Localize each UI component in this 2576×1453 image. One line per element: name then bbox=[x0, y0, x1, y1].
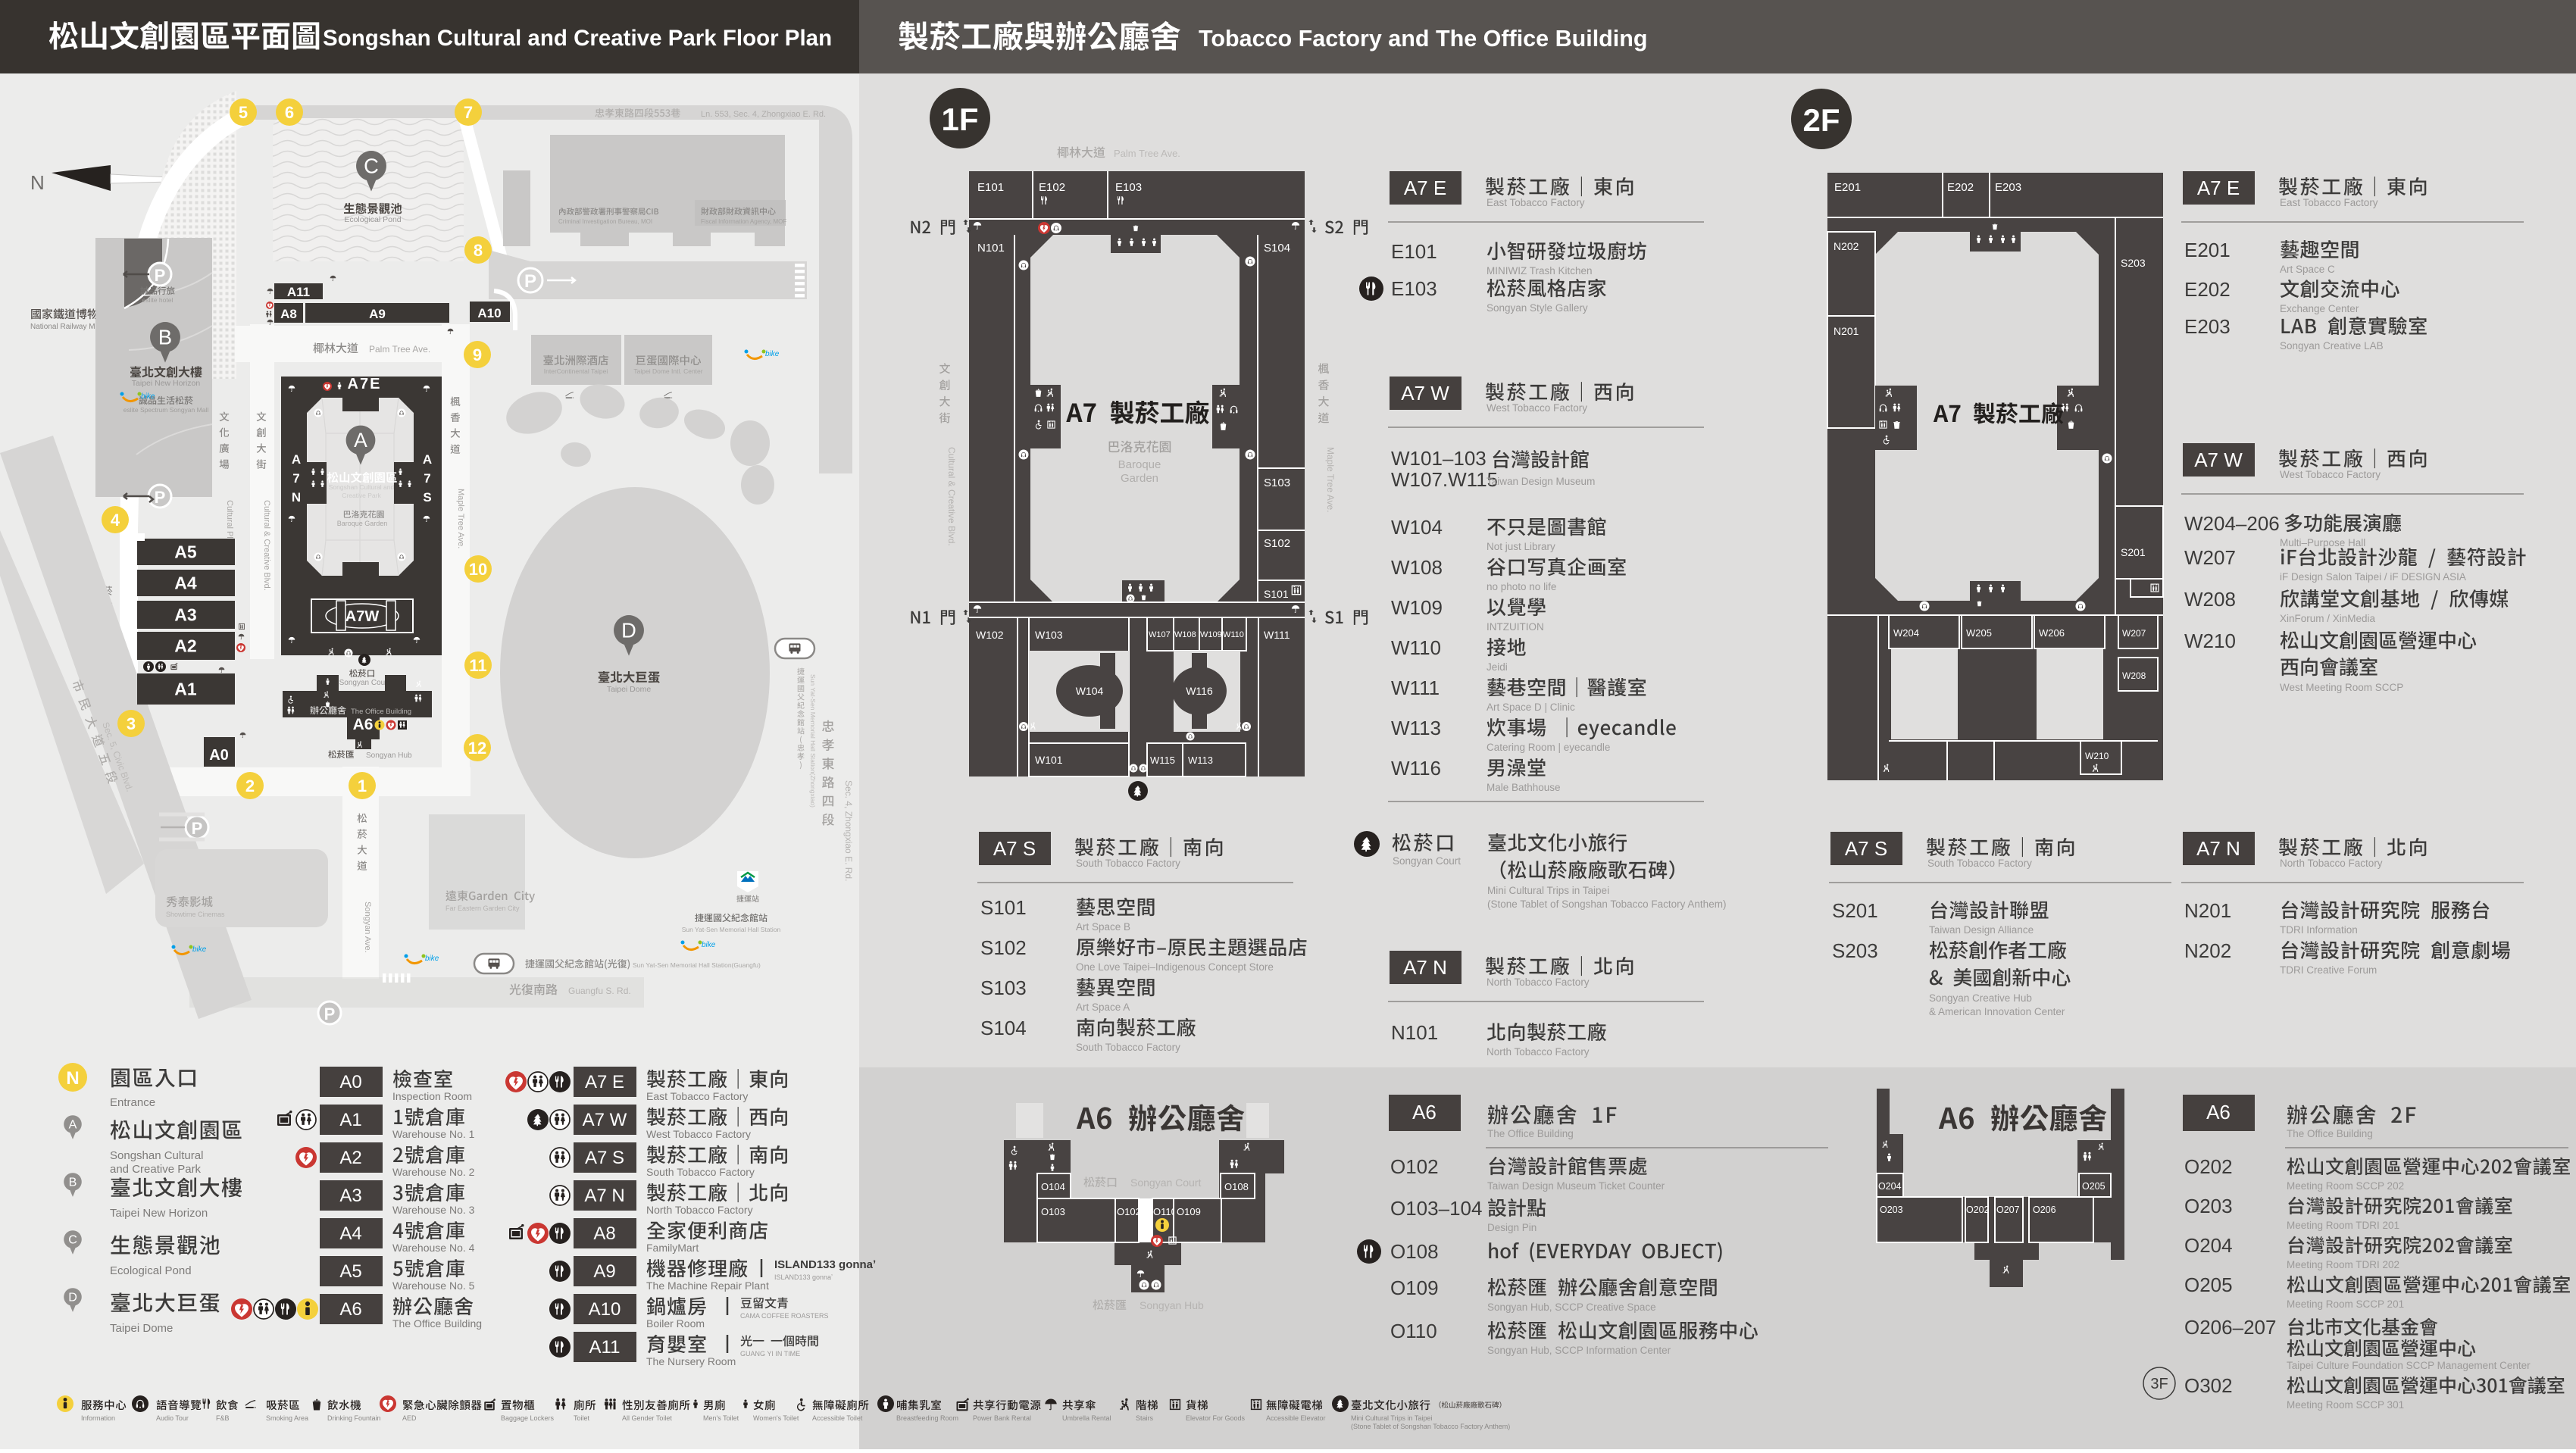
svg-text:A2: A2 bbox=[174, 636, 196, 656]
svg-text:C: C bbox=[68, 1233, 77, 1247]
svg-text:O205: O205 bbox=[2082, 1181, 2106, 1192]
svg-text:bike: bike bbox=[192, 945, 207, 954]
svg-text:A6: A6 bbox=[339, 1299, 361, 1320]
svg-text:TDRI Information: TDRI Information bbox=[2280, 924, 2358, 936]
svg-text:Design Pin: Design Pin bbox=[1487, 1222, 1537, 1233]
svg-text:Breastfeeding Room: Breastfeeding Room bbox=[896, 1414, 958, 1422]
svg-text:O104: O104 bbox=[1041, 1181, 1065, 1192]
svg-text:North Tobacco Factory: North Tobacco Factory bbox=[2280, 858, 2383, 869]
svg-text:A9: A9 bbox=[593, 1261, 615, 1282]
svg-text:Meeting Room TDRI 201: Meeting Room TDRI 201 bbox=[2287, 1220, 2399, 1231]
svg-text:The Machine Repair Plant: The Machine Repair Plant bbox=[646, 1280, 769, 1292]
svg-text:The Office Building: The Office Building bbox=[351, 708, 411, 716]
svg-text:N101: N101 bbox=[977, 242, 1005, 255]
svg-text:Palm Tree Ave.: Palm Tree Ave. bbox=[369, 344, 430, 355]
svg-text:A1: A1 bbox=[339, 1110, 361, 1130]
svg-text:Warehouse No. 2: Warehouse No. 2 bbox=[392, 1166, 475, 1178]
svg-text:Meeting Room SCCP 201: Meeting Room SCCP 201 bbox=[2287, 1298, 2404, 1310]
svg-text:Songyan Hub: Songyan Hub bbox=[366, 751, 412, 760]
svg-text:W204: W204 bbox=[1893, 627, 1919, 639]
svg-text:O202: O202 bbox=[2184, 1155, 2233, 1178]
svg-text:A: A bbox=[69, 1118, 77, 1132]
svg-text:A: A bbox=[292, 452, 301, 467]
svg-text:AED: AED bbox=[402, 1414, 417, 1422]
svg-text:A6: A6 bbox=[1412, 1101, 1436, 1123]
svg-text:W205: W205 bbox=[1966, 627, 1992, 639]
svg-text:North Tobacco Factory: North Tobacco Factory bbox=[646, 1204, 753, 1216]
svg-text:1: 1 bbox=[358, 776, 367, 795]
svg-text:A9: A9 bbox=[369, 307, 386, 321]
svg-text:Maple Tree Ave.: Maple Tree Ave. bbox=[1325, 447, 1336, 513]
svg-text:The Office Building: The Office Building bbox=[2287, 1128, 2373, 1139]
svg-text:7: 7 bbox=[424, 471, 430, 486]
svg-text:S102: S102 bbox=[1264, 537, 1290, 550]
svg-text:W109: W109 bbox=[1391, 596, 1443, 619]
svg-text:O110: O110 bbox=[1390, 1320, 1437, 1342]
svg-text:A7 E: A7 E bbox=[585, 1072, 624, 1092]
svg-text:The Office Building: The Office Building bbox=[1487, 1128, 1574, 1139]
svg-text:Taipei Dome: Taipei Dome bbox=[110, 1322, 173, 1335]
svg-text:O203: O203 bbox=[2184, 1195, 2233, 1217]
svg-text:Songshan Cultural and Creative: Songshan Cultural and Creative Park Floo… bbox=[323, 26, 832, 51]
svg-text:Sun Yat-Sen Memorial Hall Stat: Sun Yat-Sen Memorial Hall Station bbox=[682, 926, 781, 933]
svg-text:7: 7 bbox=[292, 471, 299, 486]
svg-text:5: 5 bbox=[239, 103, 248, 122]
svg-text:O206: O206 bbox=[2033, 1205, 2056, 1215]
svg-text:B: B bbox=[158, 325, 172, 348]
svg-text:(Stone Tablet of Songshan Toba: (Stone Tablet of Songshan Tobacco Factor… bbox=[1351, 1423, 1510, 1430]
svg-text:North Tobacco Factory: North Tobacco Factory bbox=[1487, 976, 1590, 988]
svg-text:ISLAND133 gonnaʼ: ISLAND133 gonnaʼ bbox=[774, 1273, 833, 1281]
svg-text:Art Space C: Art Space C bbox=[2280, 264, 2335, 275]
svg-text:eslite Spectrum Songyan Mall: eslite Spectrum Songyan Mall bbox=[123, 406, 209, 414]
svg-text:Warehouse No. 5: Warehouse No. 5 bbox=[392, 1280, 475, 1292]
svg-text:A1: A1 bbox=[174, 680, 197, 699]
svg-text:bike: bike bbox=[765, 350, 780, 358]
svg-text:iF Design Salon Taipei / iF DE: iF Design Salon Taipei / iF DESIGN ASIA bbox=[2280, 571, 2466, 583]
svg-text:W104: W104 bbox=[1391, 516, 1443, 539]
svg-text:South Tobacco Factory: South Tobacco Factory bbox=[1076, 1042, 1180, 1053]
svg-text:W208: W208 bbox=[2122, 670, 2146, 681]
svg-text:P: P bbox=[155, 488, 166, 507]
svg-text:O205: O205 bbox=[2184, 1273, 2233, 1296]
svg-text:W206: W206 bbox=[2039, 627, 2065, 639]
svg-text:W110: W110 bbox=[1223, 630, 1244, 639]
svg-text:Songyan Hub: Songyan Hub bbox=[1140, 1299, 1204, 1311]
svg-text:1F: 1F bbox=[941, 102, 978, 137]
svg-text:Cultural & Creative Blvd.: Cultural & Creative Blvd. bbox=[946, 447, 957, 546]
svg-text:Sun Yat-Sen Memorial Hall Stat: Sun Yat-Sen Memorial Hall Station(Zhongx… bbox=[809, 674, 817, 808]
svg-text:Meeting Room SCCP 202: Meeting Room SCCP 202 bbox=[2287, 1180, 2404, 1192]
svg-text:A7 S: A7 S bbox=[993, 837, 1036, 860]
svg-text:E103: E103 bbox=[1391, 277, 1437, 300]
svg-text:Accessible Elevator: Accessible Elevator bbox=[1266, 1414, 1326, 1422]
svg-text:Accessible Toilet: Accessible Toilet bbox=[812, 1414, 863, 1422]
svg-text:O102: O102 bbox=[1390, 1155, 1439, 1178]
svg-text:Meeting Room SCCP 301: Meeting Room SCCP 301 bbox=[2287, 1399, 2404, 1411]
svg-text:Sec. 4, Zhongxiao E. Rd.: Sec. 4, Zhongxiao E. Rd. bbox=[843, 780, 854, 881]
svg-text:Criminal Investigation Bureau,: Criminal Investigation Bureau, MOI bbox=[558, 218, 652, 225]
svg-text:O202: O202 bbox=[1966, 1205, 1990, 1215]
svg-text:Sun Yat-Sen Memorial Hall Stat: Sun Yat-Sen Memorial Hall Station(Guangf… bbox=[633, 961, 761, 969]
svg-text:O203: O203 bbox=[1880, 1205, 1903, 1215]
svg-text:A4: A4 bbox=[174, 573, 197, 593]
svg-text:S102: S102 bbox=[980, 936, 1027, 959]
svg-text:W116: W116 bbox=[1391, 757, 1441, 780]
svg-text:Mini Cultural Trips in Taipei: Mini Cultural Trips in Taipei bbox=[1487, 885, 1609, 896]
svg-text:Songyan Ave.: Songyan Ave. bbox=[363, 901, 372, 953]
svg-text:West Tobacco Factory: West Tobacco Factory bbox=[1487, 402, 1587, 414]
svg-text:A8: A8 bbox=[280, 307, 297, 321]
svg-text:O108: O108 bbox=[1390, 1240, 1439, 1263]
svg-text:East Tobacco Factory: East Tobacco Factory bbox=[2280, 197, 2378, 208]
svg-text:Songyan Style Gallery: Songyan Style Gallery bbox=[1487, 302, 1588, 314]
svg-text:East Tobacco Factory: East Tobacco Factory bbox=[1487, 197, 1585, 208]
svg-text:4: 4 bbox=[111, 511, 120, 530]
svg-text:Inspection Room: Inspection Room bbox=[392, 1090, 472, 1102]
svg-text:Far Eastern Garden City: Far Eastern Garden City bbox=[445, 905, 520, 912]
svg-text:W113: W113 bbox=[1391, 717, 1441, 739]
svg-text:S203: S203 bbox=[1832, 939, 1878, 962]
svg-text:D: D bbox=[68, 1291, 77, 1305]
svg-text:S203: S203 bbox=[2121, 257, 2146, 269]
svg-text:Catering Room | eyecandle: Catering Room | eyecandle bbox=[1487, 742, 1610, 753]
svg-text:P: P bbox=[192, 819, 203, 838]
svg-text:A7 W: A7 W bbox=[1401, 382, 1449, 405]
svg-text:Garden: Garden bbox=[1121, 472, 1158, 485]
svg-text:E202: E202 bbox=[1947, 181, 1974, 194]
svg-text:D: D bbox=[621, 618, 636, 642]
svg-text:Power Bank Rental: Power Bank Rental bbox=[973, 1414, 1031, 1422]
svg-text:GUANG YI IN TIME: GUANG YI IN TIME bbox=[740, 1350, 800, 1358]
svg-text:E202: E202 bbox=[2184, 278, 2231, 301]
svg-text:A8: A8 bbox=[593, 1223, 615, 1244]
svg-text:Taipei Dome: Taipei Dome bbox=[607, 685, 652, 694]
svg-text:no photo no life: no photo no life bbox=[1487, 581, 1556, 592]
svg-text:A2: A2 bbox=[339, 1148, 361, 1168]
svg-text:CAMA COFFEE ROASTERS: CAMA COFFEE ROASTERS bbox=[740, 1312, 829, 1320]
svg-text:A10: A10 bbox=[589, 1299, 621, 1320]
svg-text:N202: N202 bbox=[1834, 240, 1859, 252]
svg-text:N: N bbox=[66, 1068, 79, 1089]
svg-text:C: C bbox=[364, 154, 379, 177]
svg-text:XinForum / XinMedia: XinForum / XinMedia bbox=[2280, 613, 2376, 624]
svg-text:One Love Taipei–Indigenous Con: One Love Taipei–Indigenous Concept Store bbox=[1076, 961, 1274, 973]
svg-text:O302: O302 bbox=[2184, 1374, 2233, 1397]
svg-text:Ecological Pond: Ecological Pond bbox=[110, 1264, 192, 1277]
svg-text:A7 S: A7 S bbox=[585, 1148, 624, 1168]
svg-text:O204: O204 bbox=[1878, 1181, 1902, 1192]
svg-text:S101: S101 bbox=[1264, 588, 1289, 600]
svg-text:Ln. 553, Sec. 4, Zhongxiao E.: Ln. 553, Sec. 4, Zhongxiao E. Rd. bbox=[701, 110, 826, 119]
svg-text:Smoking Area: Smoking Area bbox=[266, 1414, 308, 1422]
svg-text:A: A bbox=[354, 429, 367, 452]
svg-text:8: 8 bbox=[474, 241, 483, 260]
svg-text:ISLAND133 gonnaʼ: ISLAND133 gonnaʼ bbox=[774, 1258, 876, 1271]
svg-text:Songyan Court: Songyan Court bbox=[339, 679, 390, 687]
svg-text:Songshan Cultural and: Songshan Cultural and bbox=[329, 483, 395, 491]
svg-text:N101: N101 bbox=[1391, 1021, 1438, 1044]
svg-text:Warehouse No. 3: Warehouse No. 3 bbox=[392, 1204, 475, 1216]
svg-text:O103–104: O103–104 bbox=[1390, 1197, 1482, 1220]
svg-text:Art Space A: Art Space A bbox=[1076, 1001, 1130, 1013]
svg-text:7: 7 bbox=[464, 103, 473, 122]
svg-text:Maple Tree Ave.: Maple Tree Ave. bbox=[456, 489, 465, 548]
svg-text:A7E: A7E bbox=[348, 376, 382, 392]
svg-text:A3: A3 bbox=[174, 605, 196, 625]
svg-text:Jeidi: Jeidi bbox=[1487, 661, 1508, 673]
svg-text:A11: A11 bbox=[589, 1337, 621, 1358]
svg-text:2: 2 bbox=[245, 776, 255, 795]
svg-text:10: 10 bbox=[469, 560, 487, 579]
svg-text:Showtime Cinemas: Showtime Cinemas bbox=[166, 911, 225, 918]
svg-text:S201: S201 bbox=[2121, 546, 2146, 558]
svg-text:W101: W101 bbox=[1035, 754, 1063, 766]
svg-text:Fiscal Information Agency, MOF: Fiscal Information Agency, MOF bbox=[701, 218, 786, 225]
svg-text:A11: A11 bbox=[287, 285, 310, 299]
svg-text:Taipei New Horizon: Taipei New Horizon bbox=[110, 1207, 208, 1220]
svg-text:Meeting Room TDRI 202: Meeting Room TDRI 202 bbox=[2287, 1259, 2399, 1270]
svg-text:North Tobacco Factory: North Tobacco Factory bbox=[1487, 1046, 1590, 1058]
svg-text:P: P bbox=[524, 271, 536, 292]
svg-text:A10: A10 bbox=[477, 306, 501, 320]
svg-text:9: 9 bbox=[473, 345, 482, 364]
svg-text:A7 E: A7 E bbox=[2197, 177, 2240, 199]
svg-text:A5: A5 bbox=[174, 542, 197, 562]
svg-text:Exchange Center: Exchange Center bbox=[2280, 303, 2359, 314]
svg-text:Women's Toilet: Women's Toilet bbox=[753, 1414, 799, 1422]
svg-text:Multi–Purpose Hall: Multi–Purpose Hall bbox=[2280, 537, 2365, 548]
svg-text:Songshan Cultural: Songshan Cultural bbox=[110, 1149, 203, 1162]
svg-text:South Tobacco Factory: South Tobacco Factory bbox=[1927, 858, 2032, 869]
svg-text:Guangfu S. Rd.: Guangfu S. Rd. bbox=[568, 986, 631, 996]
svg-text:MINIWIZ Trash Kitchen: MINIWIZ Trash Kitchen bbox=[1487, 265, 1593, 277]
svg-text:Elevator For Goods: Elevator For Goods bbox=[1186, 1414, 1246, 1422]
svg-text:Not just Library: Not just Library bbox=[1487, 541, 1555, 552]
svg-text:F&B: F&B bbox=[216, 1414, 230, 1422]
svg-text:W107: W107 bbox=[1149, 630, 1171, 639]
svg-text:bike: bike bbox=[425, 955, 439, 963]
svg-text:West Meeting Room SCCP: West Meeting Room SCCP bbox=[2280, 682, 2403, 693]
svg-text:A7W: A7W bbox=[345, 608, 380, 625]
svg-text:W108: W108 bbox=[1391, 556, 1443, 579]
svg-text:O206–207: O206–207 bbox=[2184, 1316, 2276, 1339]
svg-text:S: S bbox=[423, 490, 431, 505]
svg-text:N201: N201 bbox=[1834, 325, 1859, 337]
svg-text:Baroque Garden: Baroque Garden bbox=[337, 520, 388, 527]
svg-text:The Office Building: The Office Building bbox=[392, 1317, 482, 1330]
svg-text:eslite hotel: eslite hotel bbox=[142, 296, 174, 304]
svg-text:E102: E102 bbox=[1039, 181, 1065, 194]
svg-text:Songyan Creative LAB: Songyan Creative LAB bbox=[2280, 340, 2384, 352]
svg-text:East Tobacco Factory: East Tobacco Factory bbox=[646, 1090, 748, 1102]
svg-text:Entrance: Entrance bbox=[110, 1096, 155, 1109]
svg-text:A3: A3 bbox=[339, 1186, 361, 1206]
svg-text:S104: S104 bbox=[1264, 242, 1290, 255]
svg-text:O108: O108 bbox=[1224, 1181, 1249, 1192]
svg-text:W208: W208 bbox=[2184, 588, 2236, 611]
svg-text:INTZUITION: INTZUITION bbox=[1487, 621, 1544, 633]
svg-text:A: A bbox=[423, 452, 432, 467]
svg-text:W101–103: W101–103 bbox=[1391, 447, 1487, 470]
svg-text:and Creative Park: and Creative Park bbox=[110, 1163, 202, 1176]
svg-text:A7 E: A7 E bbox=[1404, 177, 1446, 199]
svg-text:Baroque: Baroque bbox=[1118, 458, 1161, 471]
svg-text:W210: W210 bbox=[2085, 751, 2109, 761]
svg-text:Ecological Pond: Ecological Pond bbox=[344, 215, 401, 224]
svg-text:P: P bbox=[155, 266, 166, 285]
svg-text:N202: N202 bbox=[2184, 939, 2231, 962]
svg-text:E103: E103 bbox=[1115, 181, 1142, 194]
svg-text:TDRI Creative Forum: TDRI Creative Forum bbox=[2280, 964, 2377, 976]
svg-text:A7 N: A7 N bbox=[1403, 956, 1447, 979]
svg-text:Warehouse No. 4: Warehouse No. 4 bbox=[392, 1242, 475, 1254]
svg-text:W111: W111 bbox=[1391, 677, 1440, 699]
svg-text:11: 11 bbox=[469, 656, 486, 675]
svg-text:W104: W104 bbox=[1076, 685, 1104, 697]
svg-text:S104: S104 bbox=[980, 1017, 1027, 1039]
svg-text:Creative Park: Creative Park bbox=[342, 492, 381, 499]
svg-text:Songyan Creative Hub: Songyan Creative Hub bbox=[1929, 992, 2032, 1004]
svg-text:Warehouse No. 1: Warehouse No. 1 bbox=[392, 1128, 475, 1140]
svg-text:A7 W: A7 W bbox=[583, 1110, 627, 1130]
svg-text:Songyan Hub, SCCP Creative Spa: Songyan Hub, SCCP Creative Space bbox=[1487, 1301, 1656, 1313]
svg-text:A5: A5 bbox=[339, 1261, 361, 1282]
svg-text:3F: 3F bbox=[2150, 1376, 2168, 1392]
svg-text:Songyan Court: Songyan Court bbox=[1393, 855, 1461, 867]
svg-text:E101: E101 bbox=[1391, 240, 1437, 263]
svg-text:Baggage Lockers: Baggage Lockers bbox=[501, 1414, 555, 1422]
svg-text:N201: N201 bbox=[2184, 899, 2231, 922]
svg-text:A7 N: A7 N bbox=[584, 1186, 624, 1206]
svg-text:S201: S201 bbox=[1832, 899, 1878, 922]
svg-text:B: B bbox=[69, 1176, 77, 1189]
svg-text:Information: Information bbox=[81, 1414, 115, 1422]
svg-text:A0: A0 bbox=[209, 747, 229, 764]
svg-text:Boiler Room: Boiler Room bbox=[646, 1317, 705, 1330]
svg-text:Taiwan Design Alliance: Taiwan Design Alliance bbox=[1929, 924, 2034, 936]
svg-text:W102: W102 bbox=[976, 629, 1004, 641]
svg-text:Art Space D | Clinic: Art Space D | Clinic bbox=[1487, 702, 1575, 713]
svg-text:A6: A6 bbox=[2206, 1101, 2231, 1123]
svg-text:Palm Tree Ave.: Palm Tree Ave. bbox=[1114, 148, 1180, 159]
svg-text:6: 6 bbox=[285, 103, 294, 122]
svg-text:O207: O207 bbox=[1996, 1205, 2020, 1215]
svg-text:bike: bike bbox=[702, 941, 716, 949]
svg-text:W116: W116 bbox=[1186, 685, 1213, 697]
svg-text:Mini Cultural Trips in Taipei: Mini Cultural Trips in Taipei bbox=[1351, 1414, 1432, 1422]
svg-text:O204: O204 bbox=[2184, 1234, 2233, 1257]
svg-text:Taiwan Design Museum Ticket Co: Taiwan Design Museum Ticket Counter bbox=[1487, 1180, 1665, 1192]
svg-text:W207: W207 bbox=[2122, 628, 2146, 639]
svg-text:South Tobacco Factory: South Tobacco Factory bbox=[646, 1166, 755, 1178]
svg-text:E203: E203 bbox=[2184, 315, 2231, 338]
svg-text:W103: W103 bbox=[1035, 629, 1063, 641]
svg-text:E203: E203 bbox=[1995, 181, 2021, 194]
svg-text:West Tobacco Factory: West Tobacco Factory bbox=[2280, 469, 2381, 480]
svg-text:Male Bathhouse: Male Bathhouse bbox=[1487, 782, 1561, 793]
svg-text:Taiwan Design Museum: Taiwan Design Museum bbox=[1487, 476, 1595, 487]
svg-text:bike: bike bbox=[141, 392, 155, 401]
svg-text:Tobacco Factory and The Office: Tobacco Factory and The Office Building bbox=[1199, 26, 1648, 52]
svg-text:N: N bbox=[30, 171, 45, 194]
svg-text:O102: O102 bbox=[1117, 1206, 1141, 1217]
svg-text:A7 W: A7 W bbox=[2194, 448, 2243, 471]
svg-text:W207: W207 bbox=[2184, 546, 2236, 569]
svg-text:Taipei Culture Foundation SCCP: Taipei Culture Foundation SCCP Managemen… bbox=[2287, 1360, 2531, 1371]
svg-text:N: N bbox=[292, 490, 301, 505]
svg-text:Men's Toilet: Men's Toilet bbox=[703, 1414, 739, 1422]
svg-text:S103: S103 bbox=[980, 976, 1027, 999]
svg-text:S101: S101 bbox=[980, 896, 1027, 919]
svg-text:West Tobacco Factory: West Tobacco Factory bbox=[646, 1128, 751, 1140]
svg-text:South Tobacco Factory: South Tobacco Factory bbox=[1076, 858, 1180, 869]
svg-text:Stairs: Stairs bbox=[1136, 1414, 1154, 1422]
svg-text:A4: A4 bbox=[339, 1223, 361, 1244]
svg-text:A7 N: A7 N bbox=[2196, 837, 2240, 860]
svg-text:W110: W110 bbox=[1391, 636, 1441, 659]
svg-text:O109: O109 bbox=[1390, 1276, 1439, 1299]
svg-text:E201: E201 bbox=[2184, 239, 2231, 261]
svg-text:3: 3 bbox=[127, 714, 136, 733]
svg-text:W210: W210 bbox=[2184, 630, 2236, 652]
svg-text:FamilyMart: FamilyMart bbox=[646, 1242, 699, 1254]
svg-text:A0: A0 bbox=[339, 1072, 361, 1092]
svg-text:Drinking Fountain: Drinking Fountain bbox=[327, 1414, 381, 1422]
svg-text:W113: W113 bbox=[1188, 755, 1213, 766]
svg-text:Taipei Dome Intl. Center: Taipei Dome Intl. Center bbox=[633, 367, 702, 375]
svg-text:InterContinental Taipei: InterContinental Taipei bbox=[544, 367, 608, 375]
svg-text:Songyan Court: Songyan Court bbox=[1130, 1176, 1202, 1189]
svg-text:Toilet: Toilet bbox=[574, 1414, 590, 1422]
svg-text:W108: W108 bbox=[1174, 630, 1196, 639]
svg-text:Umbrella Rental: Umbrella Rental bbox=[1062, 1414, 1111, 1422]
svg-text:12: 12 bbox=[468, 739, 486, 758]
svg-text:Art Space B: Art Space B bbox=[1076, 921, 1130, 933]
svg-text:E101: E101 bbox=[977, 181, 1004, 194]
svg-text:E201: E201 bbox=[1834, 181, 1861, 194]
svg-text:S103: S103 bbox=[1264, 477, 1290, 489]
svg-text:A7 S: A7 S bbox=[1845, 837, 1887, 860]
svg-text:All Gender Toilet: All Gender Toilet bbox=[622, 1414, 672, 1422]
svg-text:Taipei New Horizon: Taipei New Horizon bbox=[132, 379, 201, 388]
svg-text:W115: W115 bbox=[1150, 755, 1175, 766]
svg-text:& American Innovation Center: & American Innovation Center bbox=[1929, 1006, 2065, 1017]
svg-text:Songyan Hub, SCCP Information: Songyan Hub, SCCP Information Center bbox=[1487, 1345, 1671, 1356]
svg-text:W107.W115: W107.W115 bbox=[1391, 468, 1498, 491]
svg-text:P: P bbox=[324, 1005, 336, 1023]
svg-text:Cultural & Creative Blvd.: Cultural & Creative Blvd. bbox=[262, 500, 271, 591]
svg-text:(Stone Tablet of Songshan Toba: (Stone Tablet of Songshan Tobacco Factor… bbox=[1487, 898, 1726, 910]
svg-text:W111: W111 bbox=[1264, 629, 1290, 641]
svg-text:2F: 2F bbox=[1802, 102, 1840, 138]
svg-text:O109: O109 bbox=[1177, 1206, 1201, 1217]
svg-text:The Nursery Room: The Nursery Room bbox=[646, 1355, 736, 1367]
svg-text:W204–206: W204–206 bbox=[2184, 512, 2280, 535]
svg-text:O103: O103 bbox=[1041, 1206, 1065, 1217]
svg-text:A6: A6 bbox=[353, 716, 374, 733]
svg-text:W109: W109 bbox=[1200, 630, 1222, 639]
svg-text:Audio Tour: Audio Tour bbox=[156, 1414, 189, 1422]
